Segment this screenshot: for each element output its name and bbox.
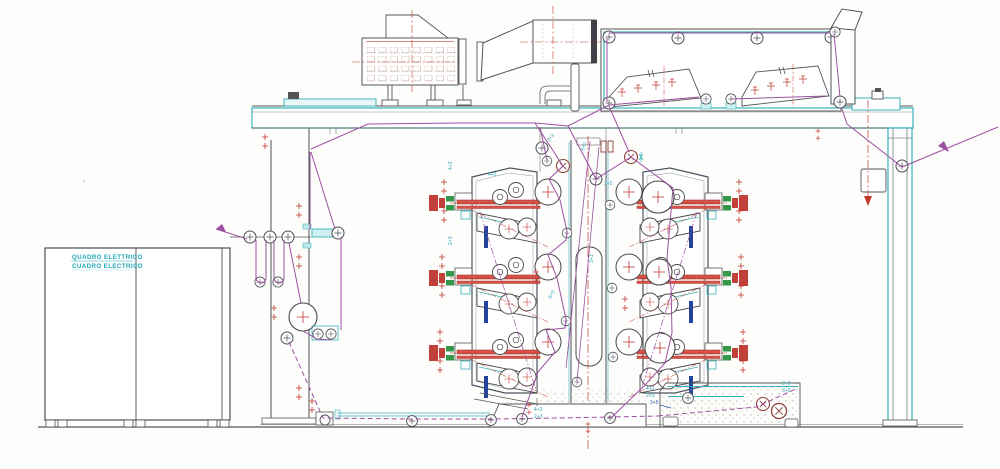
duct-pipe	[571, 64, 579, 111]
infeed-tower	[230, 128, 344, 425]
dim-label: 3+2	[782, 388, 791, 394]
cabinet-label-line2: CUADRO ELECTRICO	[72, 263, 143, 270]
dim-label: 3+3	[546, 133, 556, 144]
cabinet-label-line1: QUADRO ELETTRICO	[72, 254, 143, 261]
intake-hood	[386, 15, 448, 38]
scan-speck	[83, 180, 85, 182]
walkway-tray	[284, 99, 376, 106]
dryer-box	[601, 29, 841, 111]
motor-box	[852, 98, 900, 110]
exhaust-duct	[352, 6, 605, 111]
dim-label: 2+3	[646, 393, 655, 399]
junction-box	[861, 169, 886, 192]
right-column	[861, 100, 917, 426]
cabinet-feet	[46, 420, 229, 427]
dim-label: 6+3	[547, 289, 556, 299]
electrical-cabinet: QUADRO ELETTRICO CUADRO ELECTRICO	[45, 248, 230, 427]
dim-label: 3+5	[604, 181, 613, 187]
dim-label: 2+3	[534, 414, 543, 420]
machine-drawing: QUADRO ELETTRICO CUADRO ELECTRICO	[0, 0, 1000, 469]
web-arrow-in	[938, 141, 949, 152]
unwind-mast	[830, 9, 862, 108]
dim-label: 4+2	[448, 161, 454, 170]
dim-label: 4+2	[646, 386, 655, 392]
dim-label: 3+5	[650, 400, 659, 406]
engineering-drawing: QUADRO ELETTRICO CUADRO ELECTRICO	[0, 0, 1000, 469]
roller	[332, 227, 344, 239]
base-platforms	[335, 383, 800, 427]
direction-arrow	[864, 196, 872, 206]
dim-label: 8+2	[782, 381, 791, 387]
dim-label: 4+2	[534, 407, 543, 413]
duct-body	[533, 20, 596, 63]
duct-cone	[481, 21, 533, 80]
dim-label: 3+1	[589, 254, 595, 263]
dim-label: 4+2	[488, 172, 497, 178]
dim-label: 2+3	[448, 236, 454, 245]
